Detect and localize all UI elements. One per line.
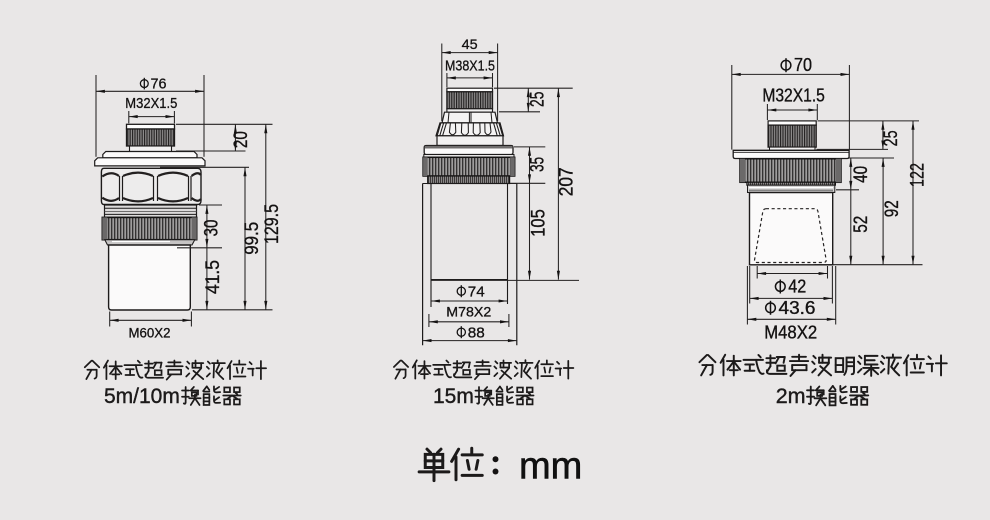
svg-text:15m: 15m — [433, 385, 474, 408]
svg-text:25: 25 — [881, 130, 902, 146]
svg-text:207: 207 — [557, 167, 578, 196]
svg-text:70: 70 — [794, 55, 812, 75]
svg-text:74: 74 — [468, 283, 485, 300]
svg-text:45: 45 — [462, 36, 478, 52]
svg-text:88: 88 — [468, 324, 485, 341]
svg-text:42: 42 — [788, 277, 806, 297]
svg-text:105: 105 — [529, 209, 550, 237]
svg-text:25: 25 — [528, 91, 549, 107]
svg-text:99.5: 99.5 — [242, 222, 263, 255]
svg-text:M32X1.5: M32X1.5 — [762, 85, 825, 105]
svg-text:76: 76 — [151, 76, 167, 92]
svg-text:92: 92 — [882, 200, 903, 217]
svg-text:mm: mm — [519, 446, 582, 488]
svg-text:20: 20 — [231, 131, 252, 148]
svg-text:30: 30 — [202, 220, 223, 237]
svg-text:52: 52 — [851, 216, 872, 233]
svg-text:43.6: 43.6 — [779, 298, 816, 318]
svg-text:41.5: 41.5 — [203, 260, 224, 294]
svg-text:M32X1.5: M32X1.5 — [125, 96, 177, 112]
svg-text:129.5: 129.5 — [262, 204, 283, 244]
svg-text:35: 35 — [528, 157, 549, 172]
svg-text:M38X1.5: M38X1.5 — [445, 58, 495, 74]
svg-text:M48X2: M48X2 — [764, 322, 817, 342]
svg-text:40: 40 — [851, 166, 872, 183]
svg-text:M60X2: M60X2 — [129, 324, 171, 340]
svg-text:5m/10m: 5m/10m — [104, 385, 180, 408]
svg-text:M78X2: M78X2 — [446, 303, 491, 319]
svg-text:122: 122 — [908, 163, 929, 187]
svg-text:2m: 2m — [776, 384, 806, 408]
